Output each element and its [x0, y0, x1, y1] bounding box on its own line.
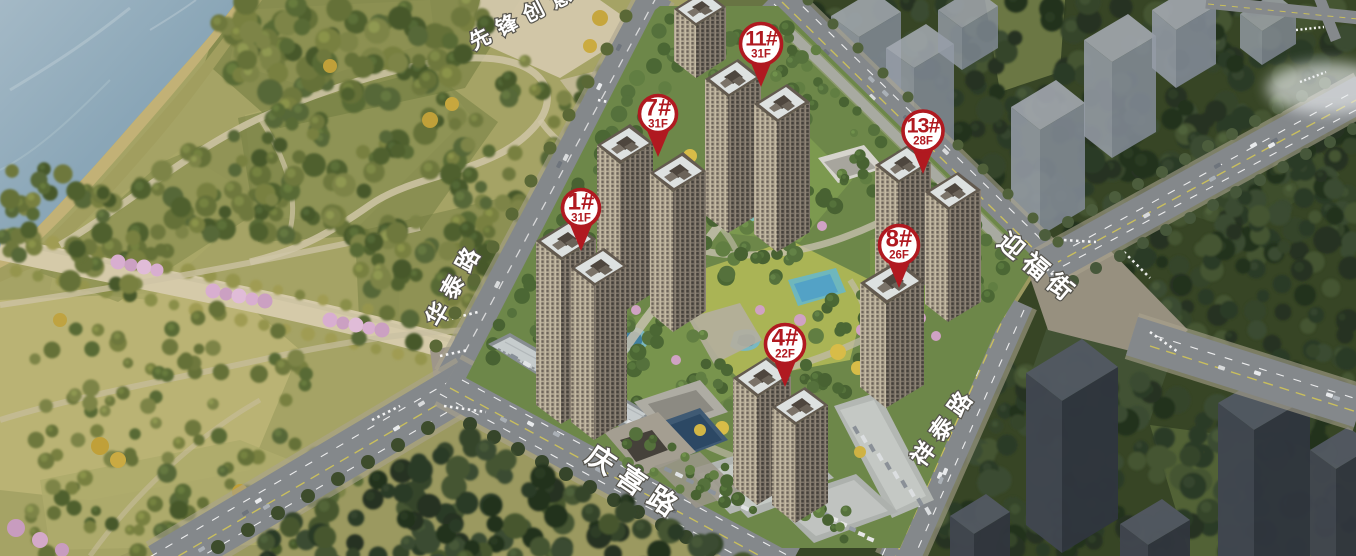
svg-text:28F: 28F — [913, 136, 933, 148]
svg-text:22F: 22F — [775, 349, 795, 361]
svg-text:4#: 4# — [772, 325, 799, 352]
svg-text:31F: 31F — [648, 119, 668, 131]
svg-text:13#: 13# — [907, 114, 941, 138]
svg-text:1#: 1# — [568, 189, 595, 216]
svg-text:31F: 31F — [571, 213, 591, 225]
svg-text:7#: 7# — [645, 95, 672, 122]
svg-text:31F: 31F — [751, 49, 771, 61]
svg-text:11#: 11# — [745, 27, 778, 51]
svg-text:26F: 26F — [889, 250, 909, 262]
svg-text:8#: 8# — [886, 226, 913, 253]
